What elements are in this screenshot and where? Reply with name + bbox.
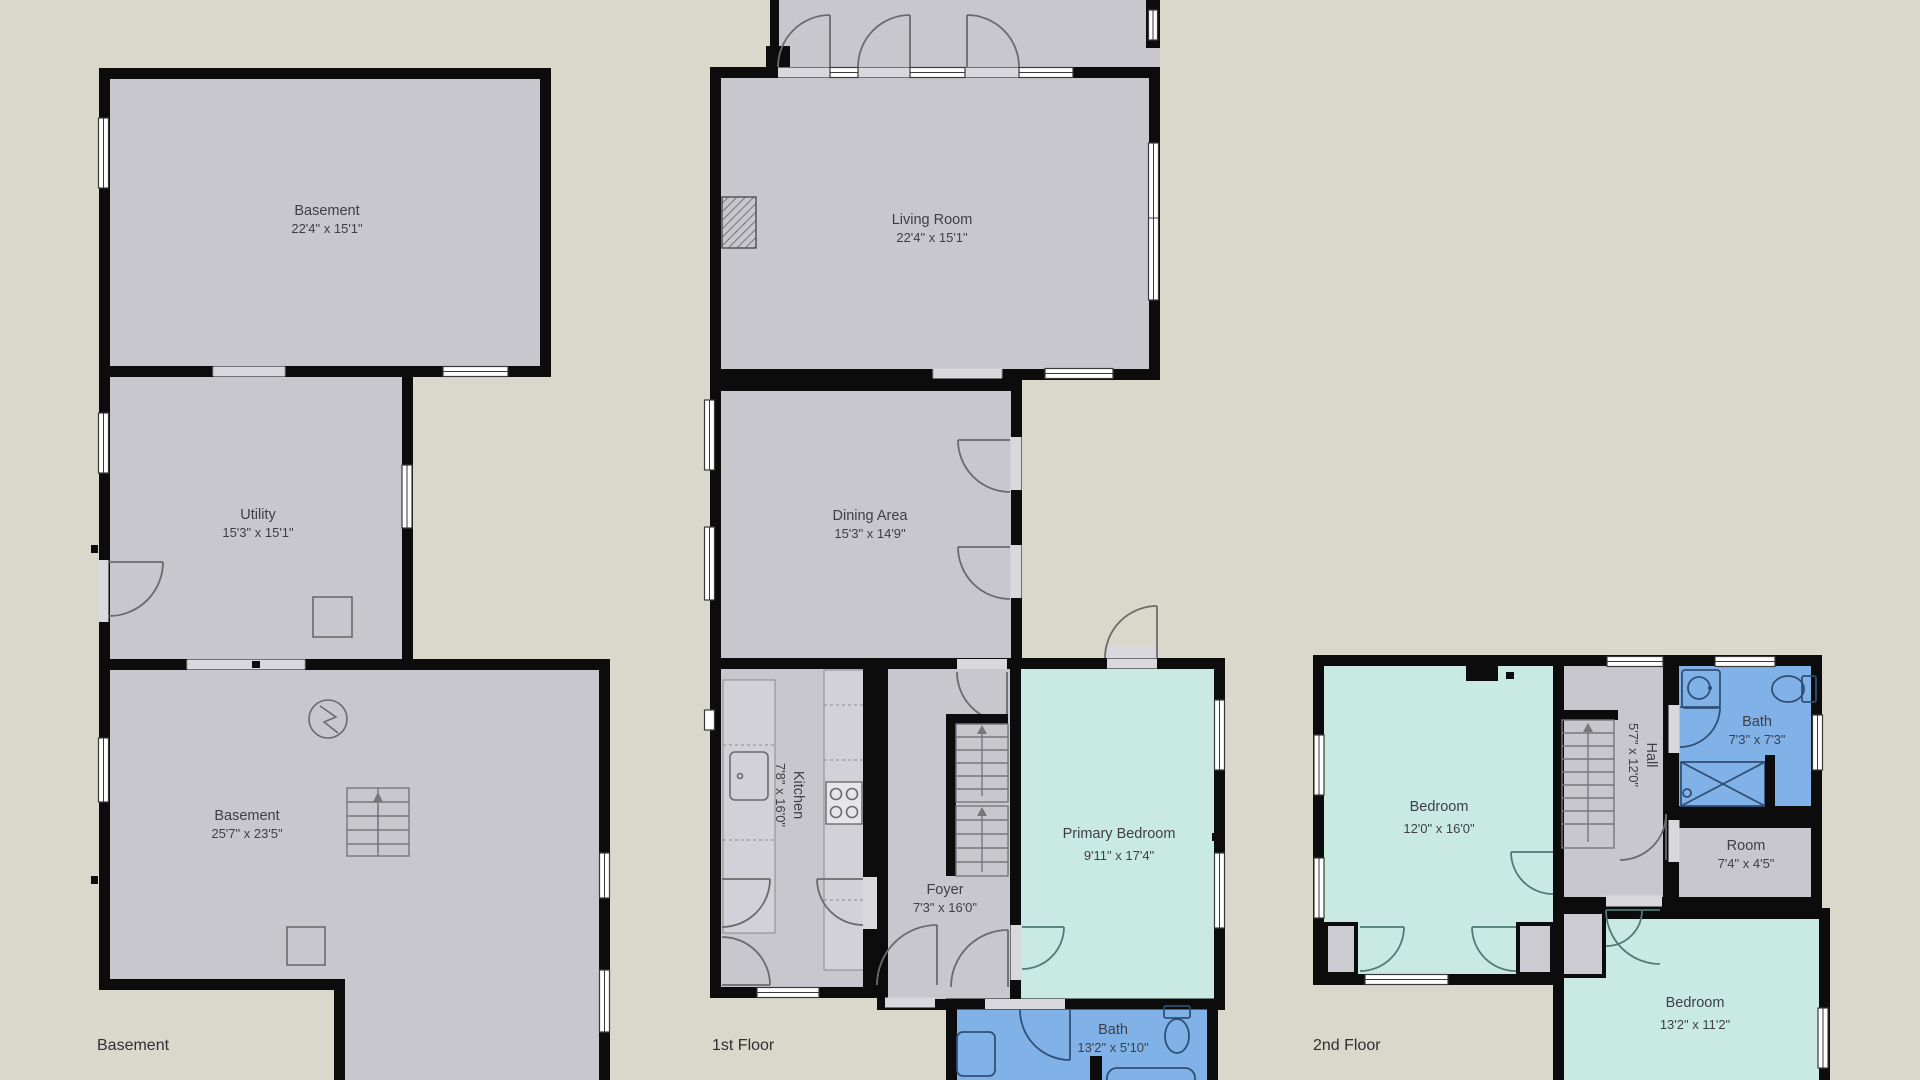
- room-dims: 13'2" x 5'10": [1077, 1040, 1149, 1055]
- room-dims: 22'4" x 15'1": [291, 221, 363, 236]
- svg-text:7'8" x 16'0": 7'8" x 16'0": [773, 763, 788, 827]
- opening: [1669, 820, 1680, 862]
- room-label: Utility: [240, 507, 276, 523]
- closet: [1518, 924, 1552, 974]
- wall-tick: [252, 661, 260, 668]
- first-floor-plan: Living Room 22'4" x 15'1" Dining Area 15…: [705, 0, 1225, 1080]
- stove-icon: [826, 782, 862, 824]
- window: [1149, 143, 1159, 300]
- floor-label-second: 2nd Floor: [1313, 1037, 1381, 1054]
- room-label: Living Room: [892, 212, 973, 228]
- window: [830, 68, 858, 78]
- room-dining-area: [716, 386, 1017, 665]
- window: [910, 68, 965, 78]
- window: [600, 853, 610, 898]
- room-basement-lower: [105, 665, 605, 1080]
- room-label: Dining Area: [833, 508, 909, 524]
- window: [1314, 735, 1324, 795]
- window: [1818, 1008, 1828, 1068]
- wall-tick: [1212, 833, 1221, 841]
- wall-stub: [1765, 755, 1775, 817]
- window: [1149, 10, 1158, 40]
- door-threshold: [1105, 646, 1159, 658]
- window: [443, 367, 508, 377]
- wall-tick: [318, 70, 326, 77]
- window: [99, 118, 109, 188]
- room-label: Room: [1727, 838, 1766, 854]
- floorplan-page: Basement 22'4" x 15'1" Utility 15'3" x 1…: [0, 0, 1920, 1080]
- window: [1215, 853, 1225, 928]
- floor-label-basement: Basement: [97, 1037, 170, 1054]
- room-dims: 13'2" x 11'2": [1660, 1017, 1731, 1032]
- window: [705, 527, 715, 600]
- window: [1045, 369, 1113, 379]
- room-label: Basement: [214, 808, 279, 824]
- opening: [778, 68, 830, 78]
- wall-tick: [528, 369, 536, 376]
- window: [1019, 68, 1073, 78]
- room-label: Primary Bedroom: [1063, 826, 1176, 842]
- opening: [1107, 659, 1157, 669]
- opening: [957, 659, 1007, 669]
- window: [99, 738, 109, 802]
- closet: [1562, 912, 1604, 976]
- room-dims: 22'4" x 15'1": [896, 230, 968, 245]
- room-dims: 15'3" x 15'1": [222, 525, 294, 540]
- window: [1215, 700, 1225, 770]
- fireplace-icon: [722, 197, 756, 248]
- room-dims: 9'11" x 17'4": [1084, 848, 1155, 863]
- room-dims: 7'3" x 7'3": [1729, 732, 1786, 747]
- room-dims: 25'7" x 23'5": [211, 826, 283, 841]
- window: [402, 465, 412, 528]
- second-floor-plan: Bedroom 12'0" x 16'0" Hall 5'7" x 12'0" …: [1314, 655, 1828, 1080]
- opening: [213, 367, 285, 377]
- wall-stub: [1090, 1056, 1102, 1080]
- room-label: Bath: [1742, 714, 1772, 730]
- window: [757, 988, 819, 998]
- svg-text:Hall: Hall: [1643, 743, 1659, 768]
- room-label: Bath: [1098, 1022, 1128, 1038]
- svg-text:5'7" x 12'0": 5'7" x 12'0": [1626, 723, 1641, 787]
- opening: [187, 660, 305, 670]
- wall-tick: [91, 545, 98, 553]
- basement-plan: Basement 22'4" x 15'1" Utility 15'3" x 1…: [91, 70, 610, 1080]
- svg-text:Kitchen: Kitchen: [790, 771, 806, 819]
- window: [600, 970, 610, 1032]
- room-label: Bedroom: [1410, 799, 1469, 815]
- opening: [985, 999, 1065, 1009]
- window: [705, 710, 715, 730]
- window: [1365, 975, 1448, 985]
- floor-label-first: 1st Floor: [712, 1037, 775, 1054]
- window: [1607, 657, 1663, 667]
- opening: [858, 68, 910, 78]
- floor-plan-canvas: Basement 22'4" x 15'1" Utility 15'3" x 1…: [0, 0, 1920, 1080]
- room-dims: 7'3" x 16'0": [913, 900, 977, 915]
- window: [1314, 858, 1324, 918]
- opening: [965, 68, 1019, 78]
- closet: [1326, 924, 1356, 974]
- chimney: [1466, 655, 1498, 681]
- opening: [1606, 896, 1662, 907]
- room-label: Basement: [294, 203, 359, 219]
- opening: [933, 369, 1002, 379]
- window: [99, 413, 109, 473]
- window: [705, 400, 715, 470]
- wall-tick: [1706, 897, 1714, 905]
- room-dims: 7'4" x 4'5": [1718, 856, 1775, 871]
- window: [1715, 657, 1775, 667]
- window: [1813, 715, 1823, 770]
- room-label: Bedroom: [1666, 995, 1725, 1011]
- opening: [885, 998, 935, 1008]
- room-label: Foyer: [926, 882, 963, 898]
- wall-tick: [91, 876, 98, 884]
- room-dims: 15'3" x 14'9": [834, 526, 906, 541]
- room-dims: 12'0" x 16'0": [1403, 821, 1475, 836]
- wall-tick: [1506, 672, 1514, 679]
